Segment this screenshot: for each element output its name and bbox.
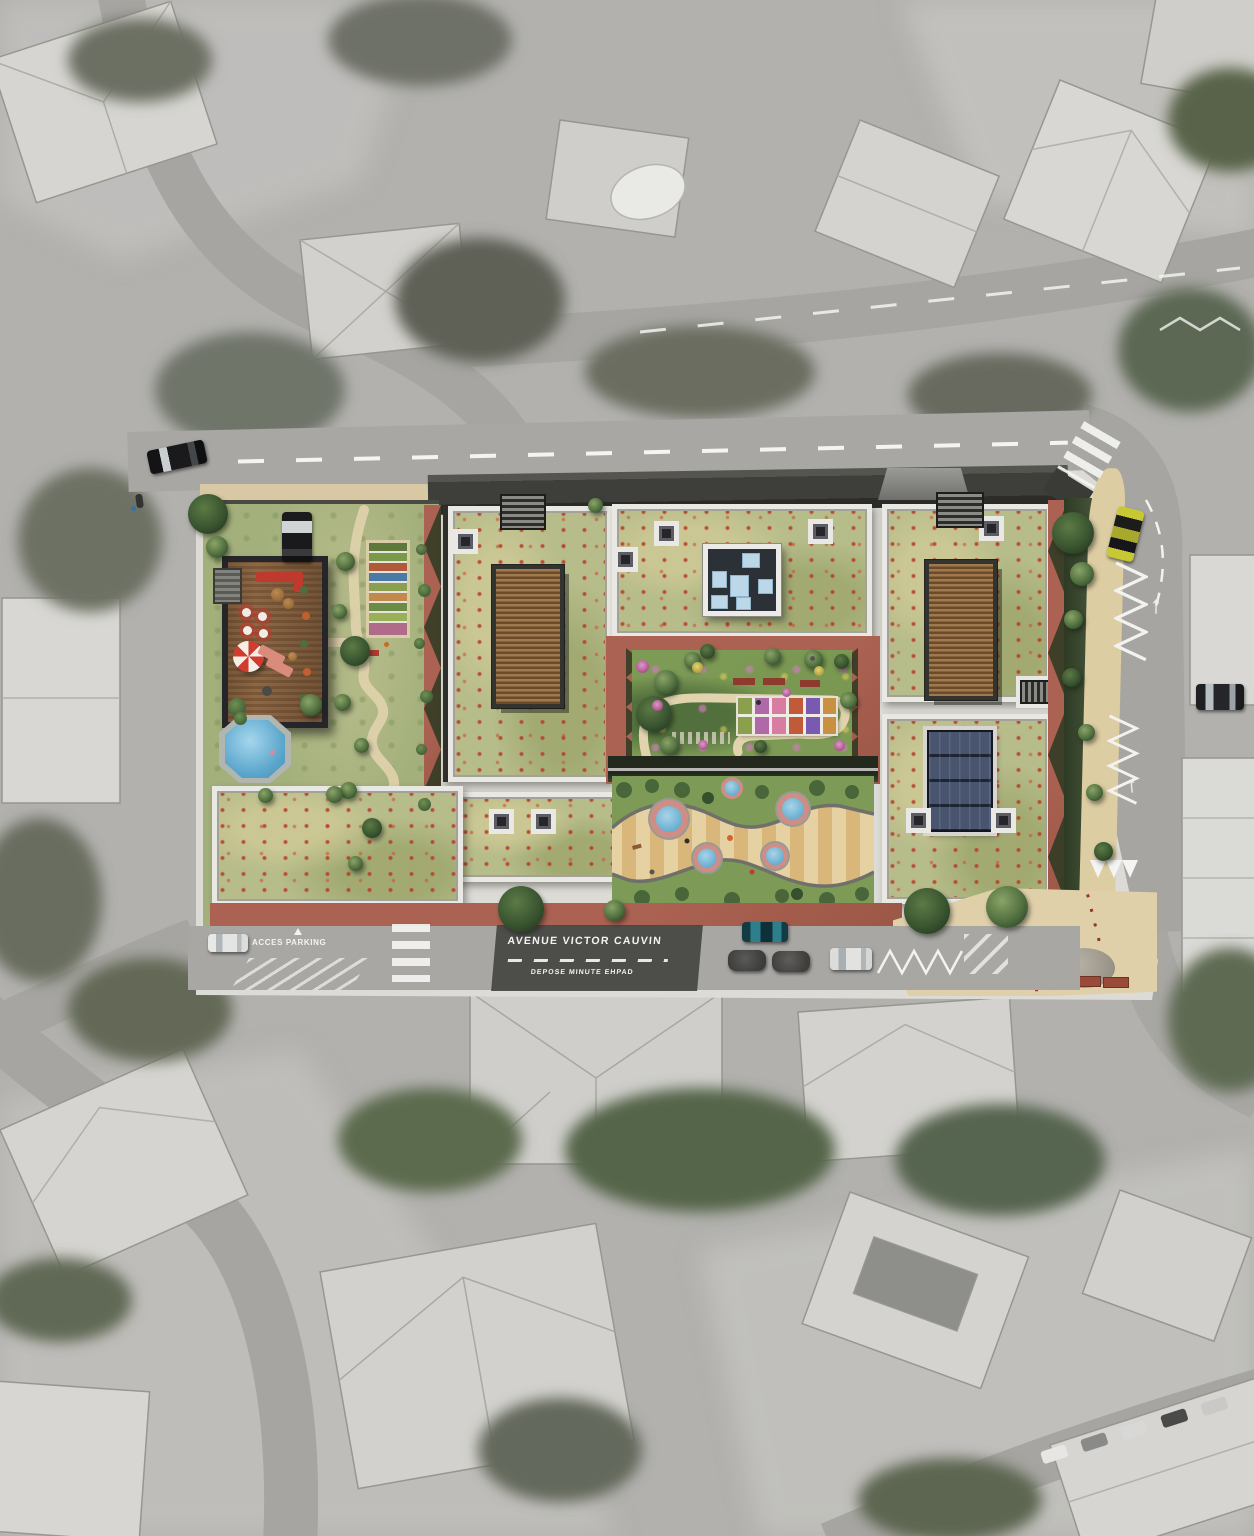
roof-access-stair bbox=[936, 492, 984, 528]
pedestrian-dot bbox=[131, 506, 136, 511]
tree bbox=[588, 498, 603, 513]
tree bbox=[660, 736, 679, 755]
red-planter bbox=[763, 678, 785, 685]
bush bbox=[416, 544, 427, 555]
plant-pot bbox=[303, 668, 311, 676]
tree bbox=[188, 494, 228, 534]
scooter bbox=[135, 494, 144, 509]
parked-car-gray bbox=[728, 950, 766, 971]
pedestrian-dot bbox=[384, 642, 389, 647]
tree bbox=[1094, 842, 1113, 861]
tree bbox=[498, 886, 544, 932]
plaza-bench bbox=[1103, 977, 1129, 988]
roof-vent bbox=[494, 814, 509, 829]
hatched-zone bbox=[964, 934, 1008, 974]
parking-access-label: ACCES PARKING bbox=[252, 938, 326, 947]
masterplan-overlay: ACCES PARKING AVENUE VICTOR CAUVIN DEPOS… bbox=[0, 0, 1254, 1536]
tree bbox=[326, 786, 343, 803]
parked-car-garden bbox=[282, 512, 312, 562]
tree bbox=[840, 692, 857, 709]
vegetable-garden-beds bbox=[366, 540, 410, 638]
wicker-chair bbox=[283, 598, 294, 609]
red-planter bbox=[800, 680, 820, 687]
roof-vent bbox=[536, 814, 551, 829]
tree bbox=[258, 788, 273, 803]
hatched-no-parking-zone bbox=[231, 958, 369, 990]
yellow-shrub bbox=[692, 662, 703, 673]
roof-access-stair bbox=[500, 494, 546, 530]
parking-access-arrow bbox=[294, 928, 302, 935]
timber-pergola bbox=[925, 560, 997, 700]
avenue-name-label: AVENUE VICTOR CAUVIN bbox=[507, 935, 663, 947]
drop-off-label: DEPOSE MINUTE EHPAD bbox=[530, 969, 634, 976]
plant-pot bbox=[300, 640, 308, 648]
tree bbox=[348, 856, 363, 871]
band-dash-line bbox=[508, 959, 668, 962]
red-planter bbox=[733, 678, 755, 685]
flowering-shrub bbox=[782, 688, 791, 697]
outdoor-sofa bbox=[256, 572, 298, 582]
tree bbox=[1078, 724, 1095, 741]
parked-car-dark bbox=[1196, 684, 1244, 710]
tree bbox=[332, 604, 347, 619]
skylight-glass bbox=[742, 553, 760, 568]
tree bbox=[604, 900, 625, 921]
flowering-shrub bbox=[834, 740, 845, 751]
tree bbox=[354, 738, 369, 753]
pedestrian-dot bbox=[810, 656, 815, 661]
parked-car-gray bbox=[772, 951, 810, 972]
wicker-chair bbox=[271, 588, 284, 601]
raised-flower-beds bbox=[738, 698, 836, 734]
tree bbox=[986, 886, 1028, 928]
parked-car-teal bbox=[742, 922, 788, 942]
skylight-glass bbox=[711, 595, 728, 609]
tree bbox=[336, 552, 355, 571]
skylight-glass bbox=[730, 575, 749, 597]
dining-table bbox=[259, 629, 268, 638]
green-roof-parcel bbox=[455, 792, 630, 882]
drop-off-band: AVENUE VICTOR CAUVIN DEPOSE MINUTE EHPAD bbox=[491, 925, 703, 991]
side-table bbox=[288, 652, 297, 661]
bush bbox=[418, 584, 431, 597]
swimming-pool bbox=[225, 720, 285, 778]
dining-table bbox=[243, 626, 252, 635]
aerial-masterplan-view: ACCES PARKING AVENUE VICTOR CAUVIN DEPOS… bbox=[0, 0, 1254, 1536]
road-arrow-up: ↑ bbox=[1150, 592, 1162, 620]
yellow-shrub bbox=[814, 666, 824, 676]
playground bbox=[612, 776, 874, 908]
patio-table bbox=[262, 686, 272, 696]
palm-tree bbox=[764, 648, 781, 665]
parked-car-white bbox=[830, 948, 872, 970]
plant-pot bbox=[302, 612, 310, 620]
tree bbox=[340, 636, 370, 666]
parked-car-white bbox=[208, 934, 248, 952]
bush bbox=[414, 638, 425, 649]
flowering-shrub bbox=[698, 740, 708, 750]
flowering-shrub bbox=[652, 700, 663, 711]
bush bbox=[418, 798, 431, 811]
dining-table bbox=[258, 612, 267, 621]
roof-vent bbox=[996, 813, 1011, 828]
parasol bbox=[233, 641, 264, 672]
tree bbox=[300, 694, 322, 716]
zigzag-marking-east1 bbox=[1114, 560, 1148, 668]
tree bbox=[1086, 784, 1103, 801]
skylight-glass bbox=[758, 579, 773, 594]
bush bbox=[416, 744, 427, 755]
tree bbox=[1070, 562, 1094, 586]
zigzag-marking-avenue bbox=[876, 948, 968, 976]
roof-vent bbox=[618, 552, 633, 567]
tree bbox=[754, 740, 767, 753]
solar-panel-array bbox=[927, 730, 993, 832]
courtyard-walkway-line bbox=[608, 768, 878, 771]
roof-vent bbox=[984, 521, 999, 536]
skylight-glass bbox=[736, 597, 751, 610]
tree bbox=[1064, 610, 1083, 629]
roof-vent bbox=[911, 813, 926, 828]
bush bbox=[234, 712, 247, 725]
tree bbox=[206, 536, 228, 558]
timber-pergola bbox=[492, 565, 564, 708]
skylight-glass bbox=[712, 571, 727, 588]
dining-table bbox=[242, 608, 251, 617]
palm-tree bbox=[654, 670, 678, 694]
tree bbox=[1062, 668, 1081, 687]
pedestrian-dot bbox=[756, 700, 761, 705]
swimmer-dot bbox=[270, 750, 275, 755]
roof-vent bbox=[458, 534, 473, 549]
lane-dash-line bbox=[238, 441, 1068, 464]
stair-core bbox=[213, 568, 242, 604]
bush bbox=[420, 690, 433, 703]
roof-vent bbox=[659, 526, 674, 541]
tree bbox=[904, 888, 950, 934]
tree bbox=[362, 818, 382, 838]
tree bbox=[334, 694, 351, 711]
plant-pot bbox=[300, 586, 308, 594]
tree bbox=[834, 654, 849, 669]
roof-skylight bbox=[703, 544, 781, 616]
flowering-shrub bbox=[636, 660, 649, 673]
palm-tree bbox=[700, 644, 715, 659]
tree bbox=[1052, 512, 1094, 554]
roof-vent bbox=[813, 524, 828, 539]
hedge-zigzag-west bbox=[424, 505, 441, 831]
crosswalk bbox=[392, 924, 430, 982]
triangle-marking-plaza bbox=[1090, 860, 1138, 880]
